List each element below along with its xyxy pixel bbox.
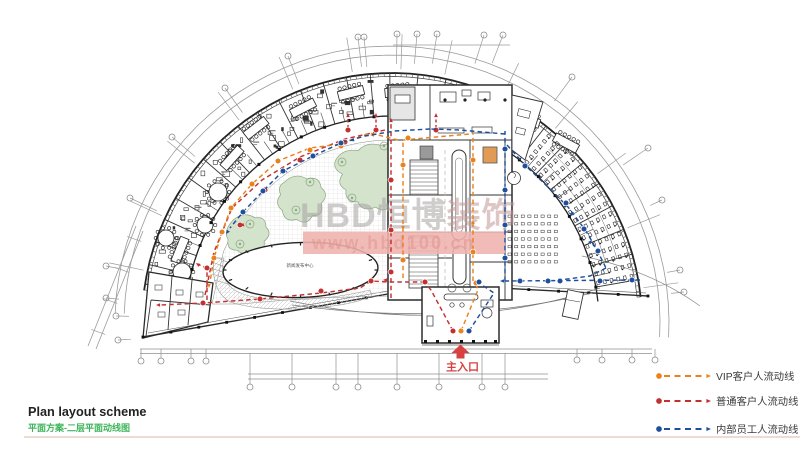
svg-text:普通客户人流动线: 普通客户人流动线: [716, 395, 798, 408]
svg-text:www.hbd100.cn: www.hbd100.cn: [311, 233, 476, 253]
svg-text:Plan layout scheme: Plan layout scheme: [28, 405, 146, 419]
svg-text:VIP客户人流动线: VIP客户人流动线: [716, 370, 794, 383]
svg-text:HBD恒博装饰: HBD恒博装饰: [300, 197, 517, 235]
svg-text:平面方案-二层平面动线图: 平面方案-二层平面动线图: [28, 422, 130, 433]
svg-text:新闻发布中心: 新闻发布中心: [287, 262, 314, 269]
svg-text:主入口: 主入口: [446, 360, 479, 374]
svg-text:内部员工人流动线: 内部员工人流动线: [716, 423, 798, 436]
